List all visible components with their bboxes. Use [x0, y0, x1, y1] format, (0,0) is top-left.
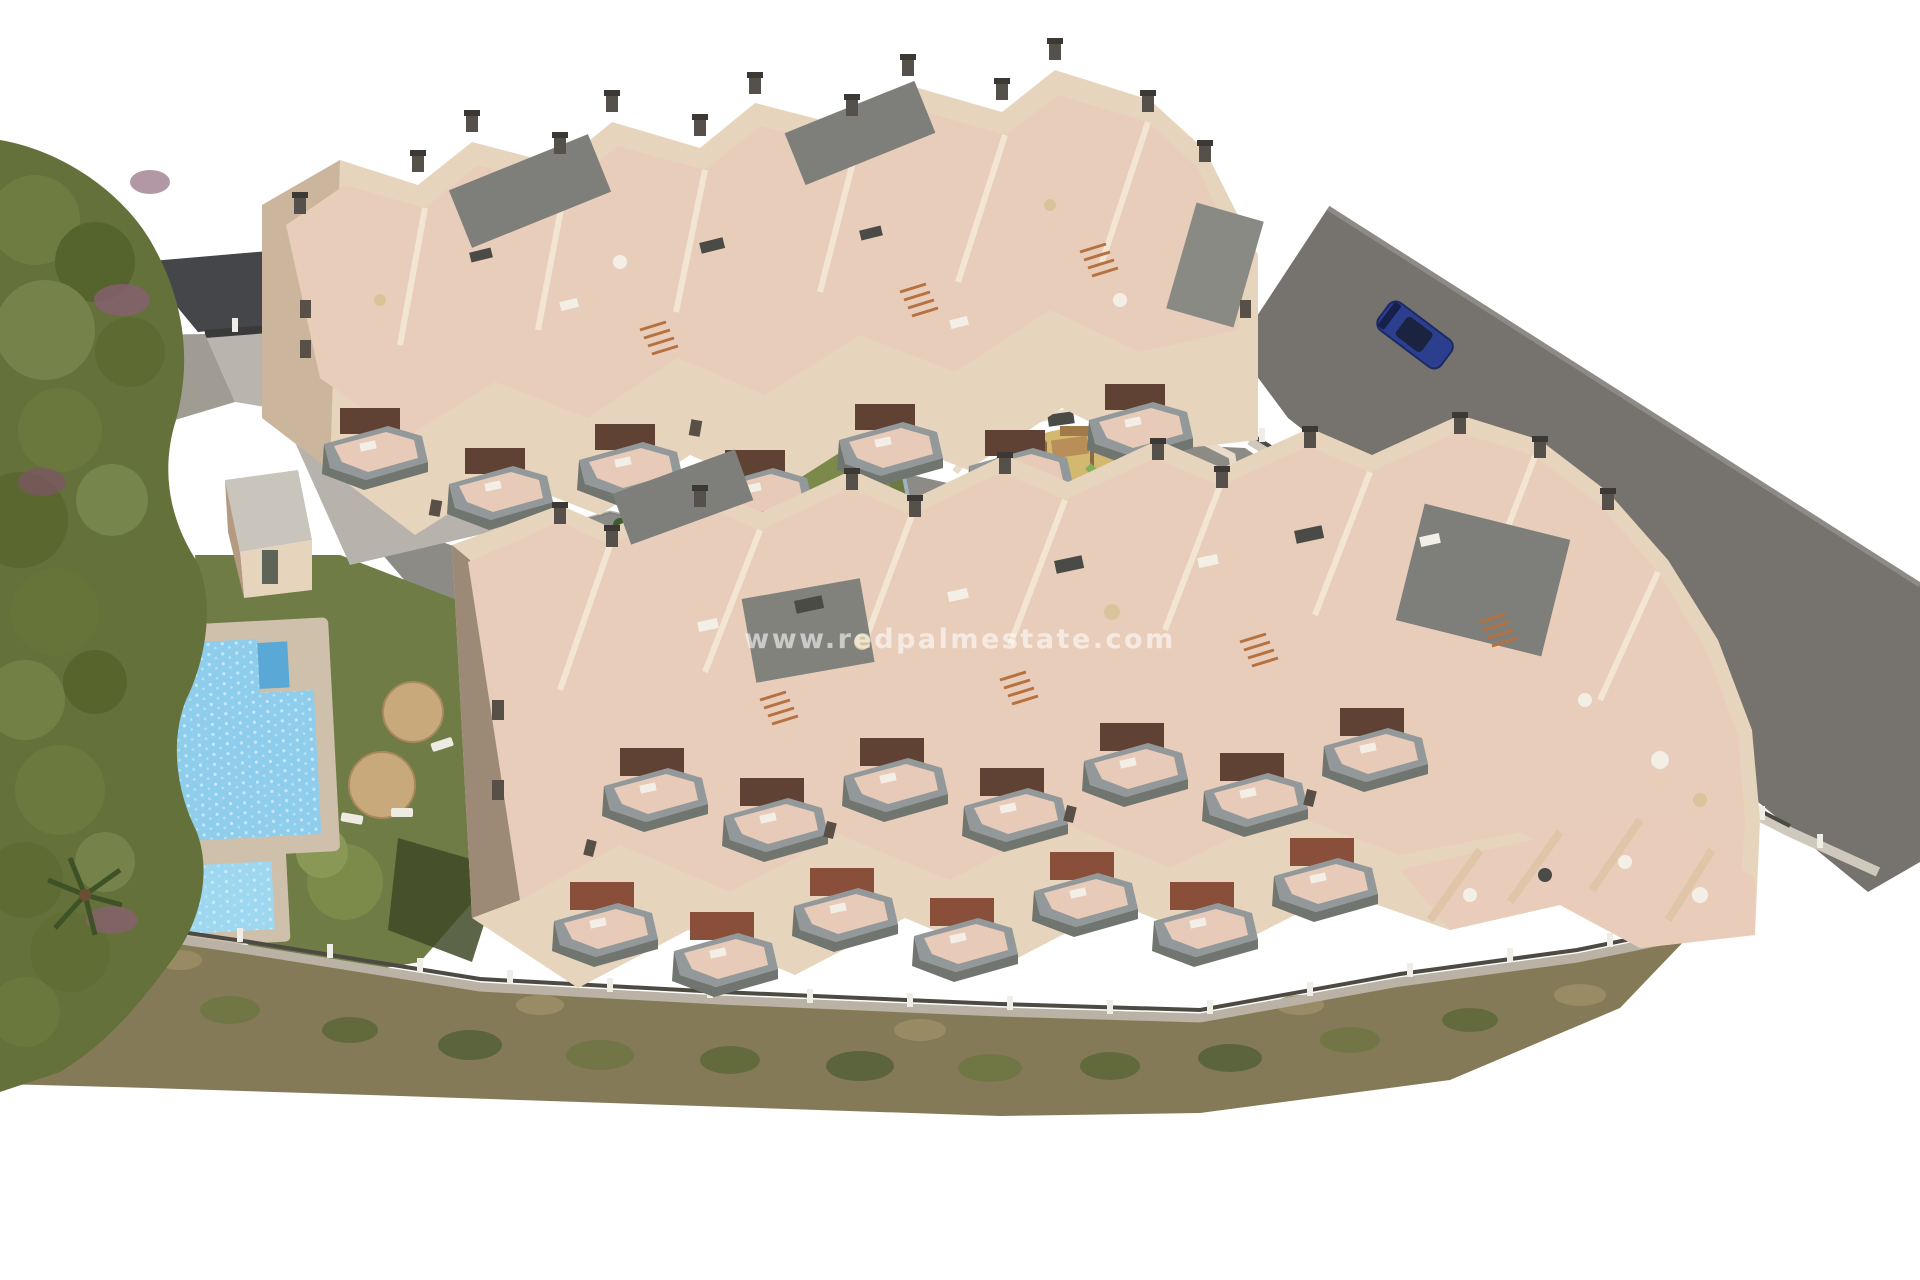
render-image: www.redpalmestate.com	[0, 0, 1920, 1280]
umbrella	[383, 682, 443, 742]
watermark-text: www.redpalmestate.com	[744, 624, 1175, 655]
scene-svg: www.redpalmestate.com	[0, 0, 1920, 1280]
pool-house-door	[262, 550, 278, 584]
